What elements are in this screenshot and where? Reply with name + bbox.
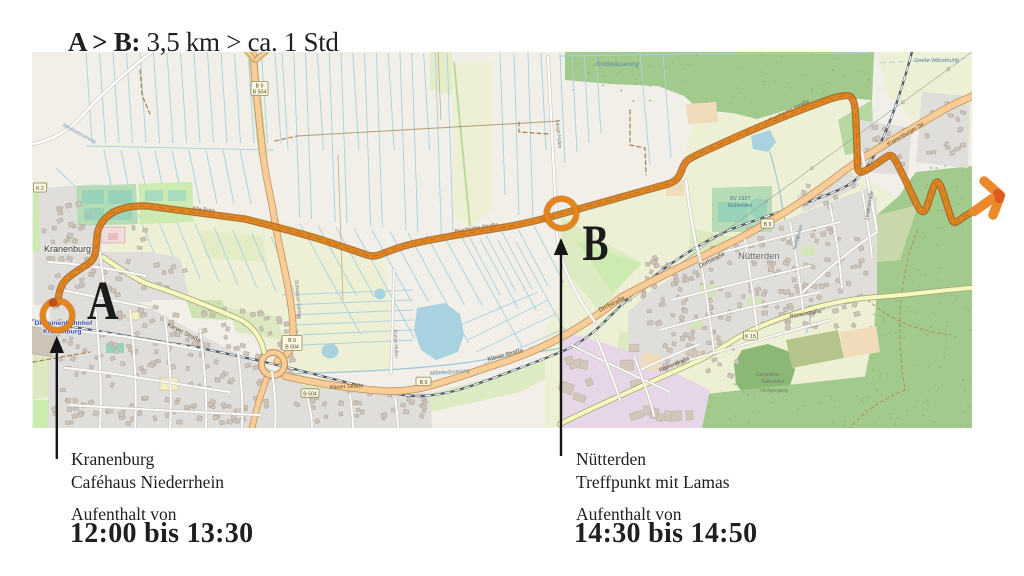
svg-text:A: A — [87, 270, 119, 331]
svg-text:B 9: B 9 — [420, 380, 428, 386]
svg-text:B 504: B 504 — [285, 345, 299, 351]
svg-text:B 9: B 9 — [256, 84, 264, 90]
svg-text:SV 1927: SV 1927 — [729, 196, 750, 202]
svg-text:Kurze Hufen: Kurze Hufen — [392, 330, 399, 358]
svg-text:Großwässerung: Großwässerung — [596, 62, 639, 68]
svg-text:B 9: B 9 — [764, 222, 772, 228]
svg-text:B 504: B 504 — [253, 90, 267, 96]
svg-text:Nütterden: Nütterden — [728, 203, 752, 209]
svg-text:K 15: K 15 — [745, 334, 756, 340]
svg-text:K 2: K 2 — [36, 186, 44, 192]
svg-text:B: B — [583, 216, 609, 272]
svg-text:Große Wässerung: Große Wässerung — [914, 58, 960, 64]
svg-text:Niershaus: Niershaus — [762, 379, 785, 385]
svg-text:B 504: B 504 — [303, 391, 317, 397]
svg-text:Kranenburg: Kranenburg — [44, 244, 91, 254]
svg-text:B 9: B 9 — [288, 338, 296, 344]
svg-text:Gartenbau: Gartenbau — [756, 372, 780, 378]
svg-text:Heiligenberg: Heiligenberg — [760, 388, 788, 394]
svg-text:Nütterden: Nütterden — [738, 251, 780, 262]
